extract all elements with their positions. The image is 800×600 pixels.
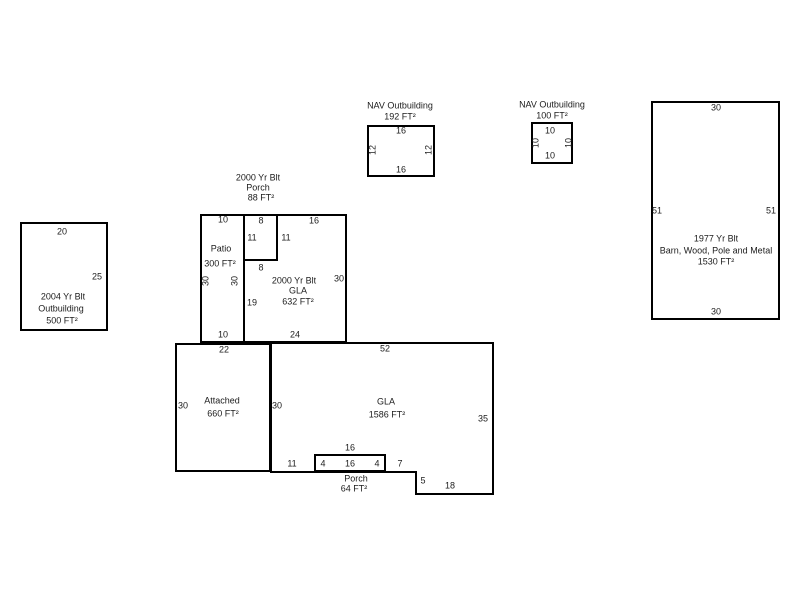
- dim-label-gla-left: 30: [272, 402, 282, 411]
- main-porch-name-label: Porch: [344, 475, 368, 484]
- attached-outline: [175, 343, 271, 472]
- dim-label-right-of-porch: 7: [397, 460, 402, 469]
- main-gla-area-label: 1586 FT²: [369, 411, 406, 420]
- dim-label-porch-right: 4: [374, 460, 379, 469]
- dim-label-step: 5: [420, 477, 425, 486]
- attached-area-label: 660 FT²: [207, 410, 239, 419]
- main-gla-outline: [0, 0, 800, 600]
- attached-name-label: Attached: [204, 397, 240, 406]
- dim-label-porch-left: 4: [320, 460, 325, 469]
- dim-label-attached-top: 22: [219, 346, 229, 355]
- dim-label-gla-top: 52: [380, 345, 390, 354]
- dim-label-gla-right: 35: [478, 415, 488, 424]
- sketch-canvas: 20 25 2004 Yr Blt Outbuilding 500 FT² NA…: [0, 0, 800, 600]
- main-porch-area-label: 64 FT²: [341, 485, 368, 494]
- main-gla-name-label: GLA: [377, 398, 395, 407]
- dim-label-bottom-right: 18: [445, 482, 455, 491]
- dim-label-above-porch: 16: [345, 444, 355, 453]
- dim-label-porch-mid: 16: [345, 460, 355, 469]
- dim-label-attached-left: 30: [178, 402, 188, 411]
- dim-label-left-of-porch: 11: [287, 460, 296, 469]
